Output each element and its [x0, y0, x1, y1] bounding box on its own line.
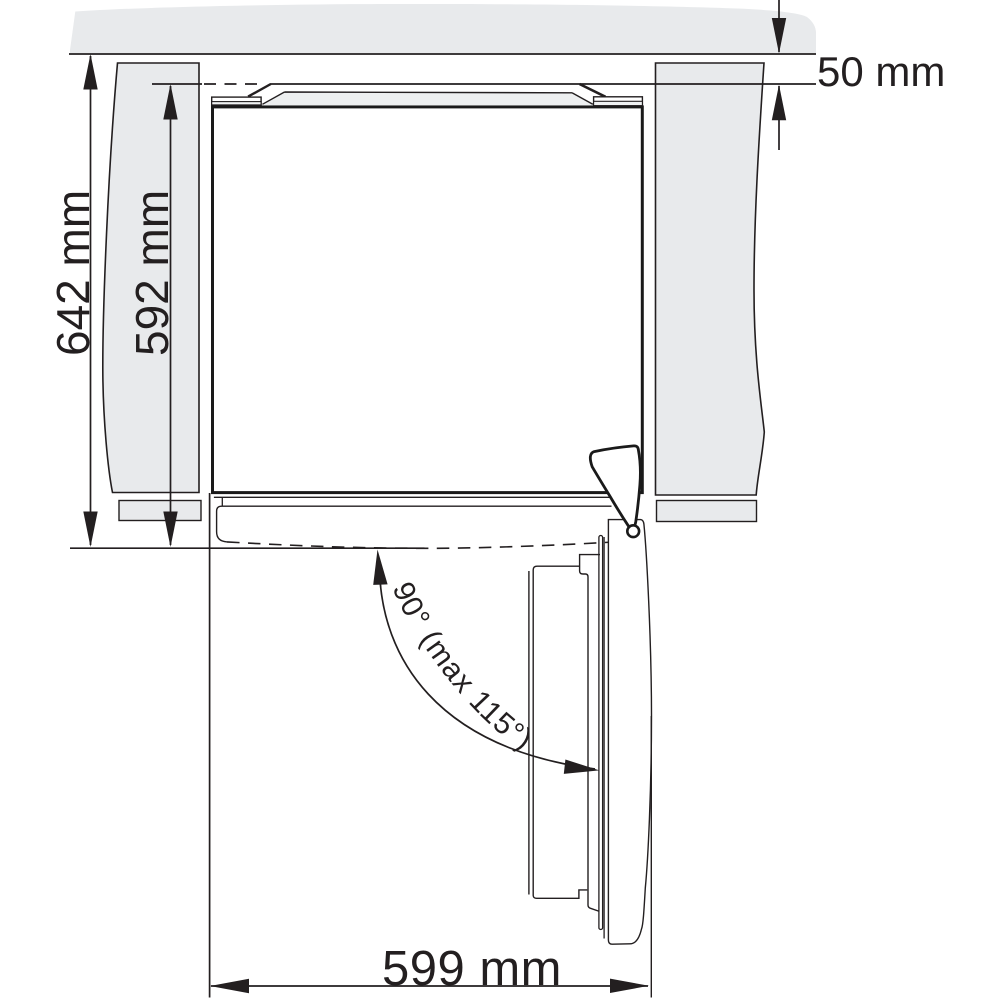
svg-text:599 mm: 599 mm [382, 942, 562, 996]
svg-text:592 mm: 592 mm [126, 190, 178, 356]
svg-text:50 mm: 50 mm [817, 48, 945, 95]
svg-text:642 mm: 642 mm [47, 190, 99, 356]
